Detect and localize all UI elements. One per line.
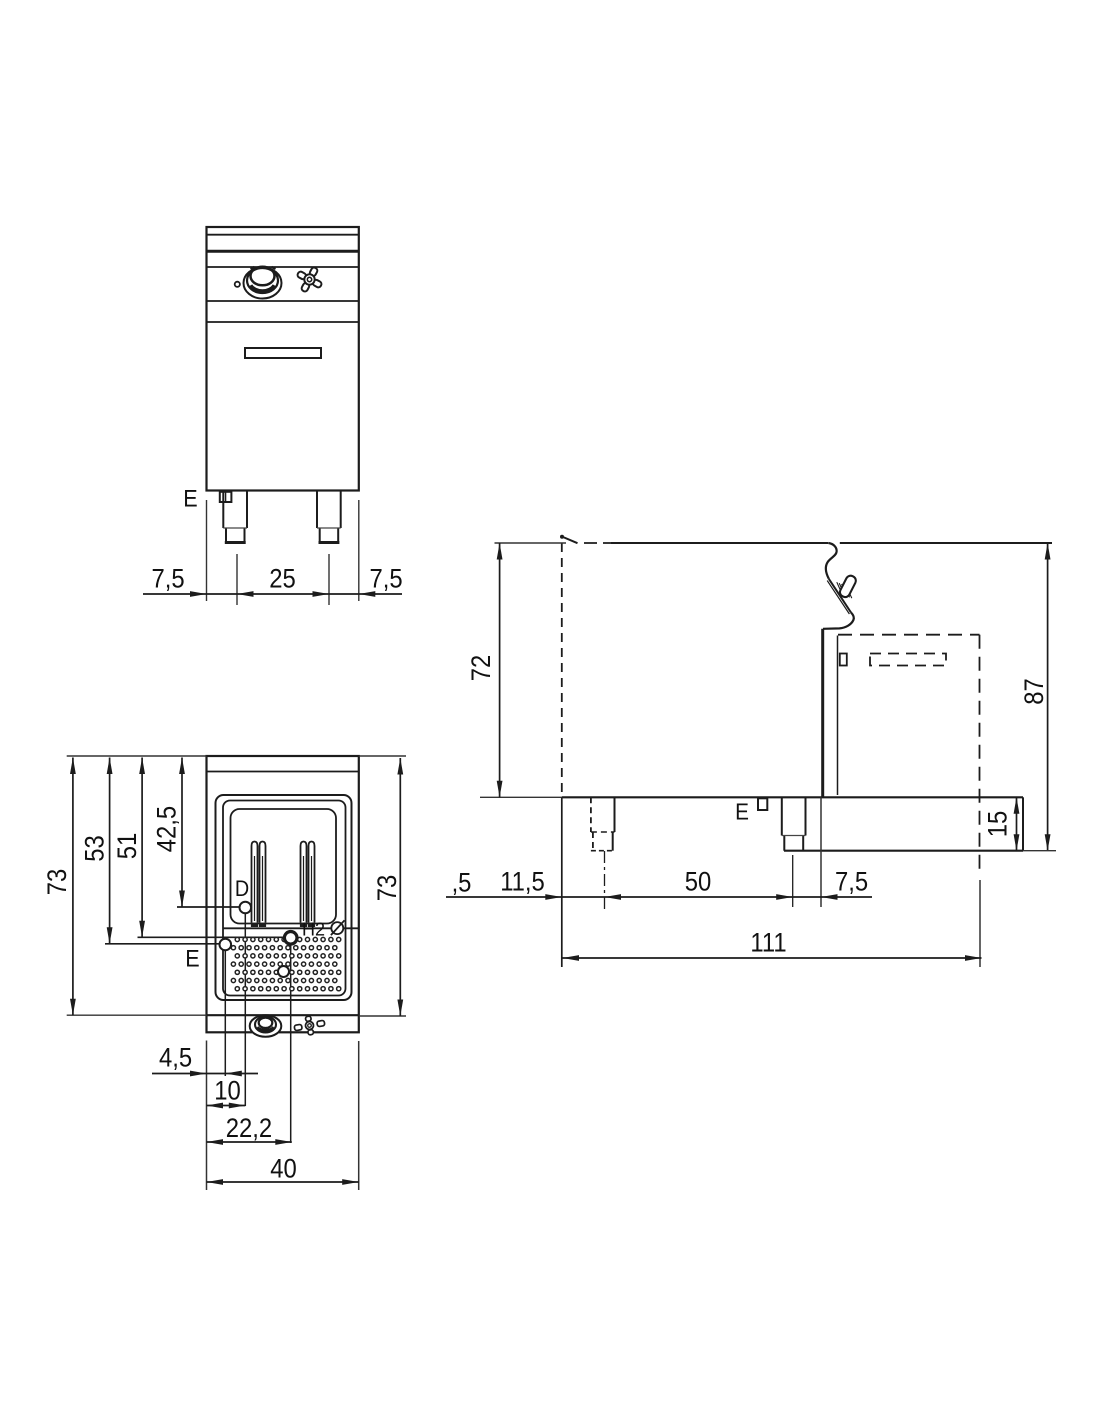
svg-text:7,5: 7,5 bbox=[151, 564, 184, 593]
svg-text:10: 10 bbox=[214, 1076, 241, 1105]
svg-text:7,5: 7,5 bbox=[835, 867, 868, 896]
svg-text:40: 40 bbox=[270, 1154, 297, 1183]
svg-text:15: 15 bbox=[983, 811, 1012, 838]
svg-text:4,5: 4,5 bbox=[159, 1043, 192, 1072]
svg-text:73: 73 bbox=[373, 875, 402, 902]
svg-text:11,5: 11,5 bbox=[500, 867, 545, 896]
svg-text:72: 72 bbox=[467, 655, 496, 682]
svg-text:H2: H2 bbox=[302, 919, 325, 939]
svg-text:E: E bbox=[735, 798, 749, 824]
svg-text:87: 87 bbox=[1020, 678, 1049, 705]
svg-text:111: 111 bbox=[750, 928, 786, 957]
svg-text:E: E bbox=[185, 944, 199, 971]
svg-text:7,5: 7,5 bbox=[369, 564, 402, 593]
svg-text:25: 25 bbox=[269, 564, 296, 593]
svg-text:51: 51 bbox=[113, 833, 142, 860]
svg-text:50: 50 bbox=[685, 867, 712, 896]
svg-text:42,5: 42,5 bbox=[152, 806, 181, 852]
svg-text:E: E bbox=[183, 484, 197, 511]
svg-text:D: D bbox=[235, 877, 249, 901]
svg-text:22,2: 22,2 bbox=[226, 1114, 272, 1143]
svg-text:73: 73 bbox=[43, 869, 72, 896]
svg-text:53: 53 bbox=[80, 835, 109, 862]
svg-text:,5: ,5 bbox=[452, 868, 472, 897]
